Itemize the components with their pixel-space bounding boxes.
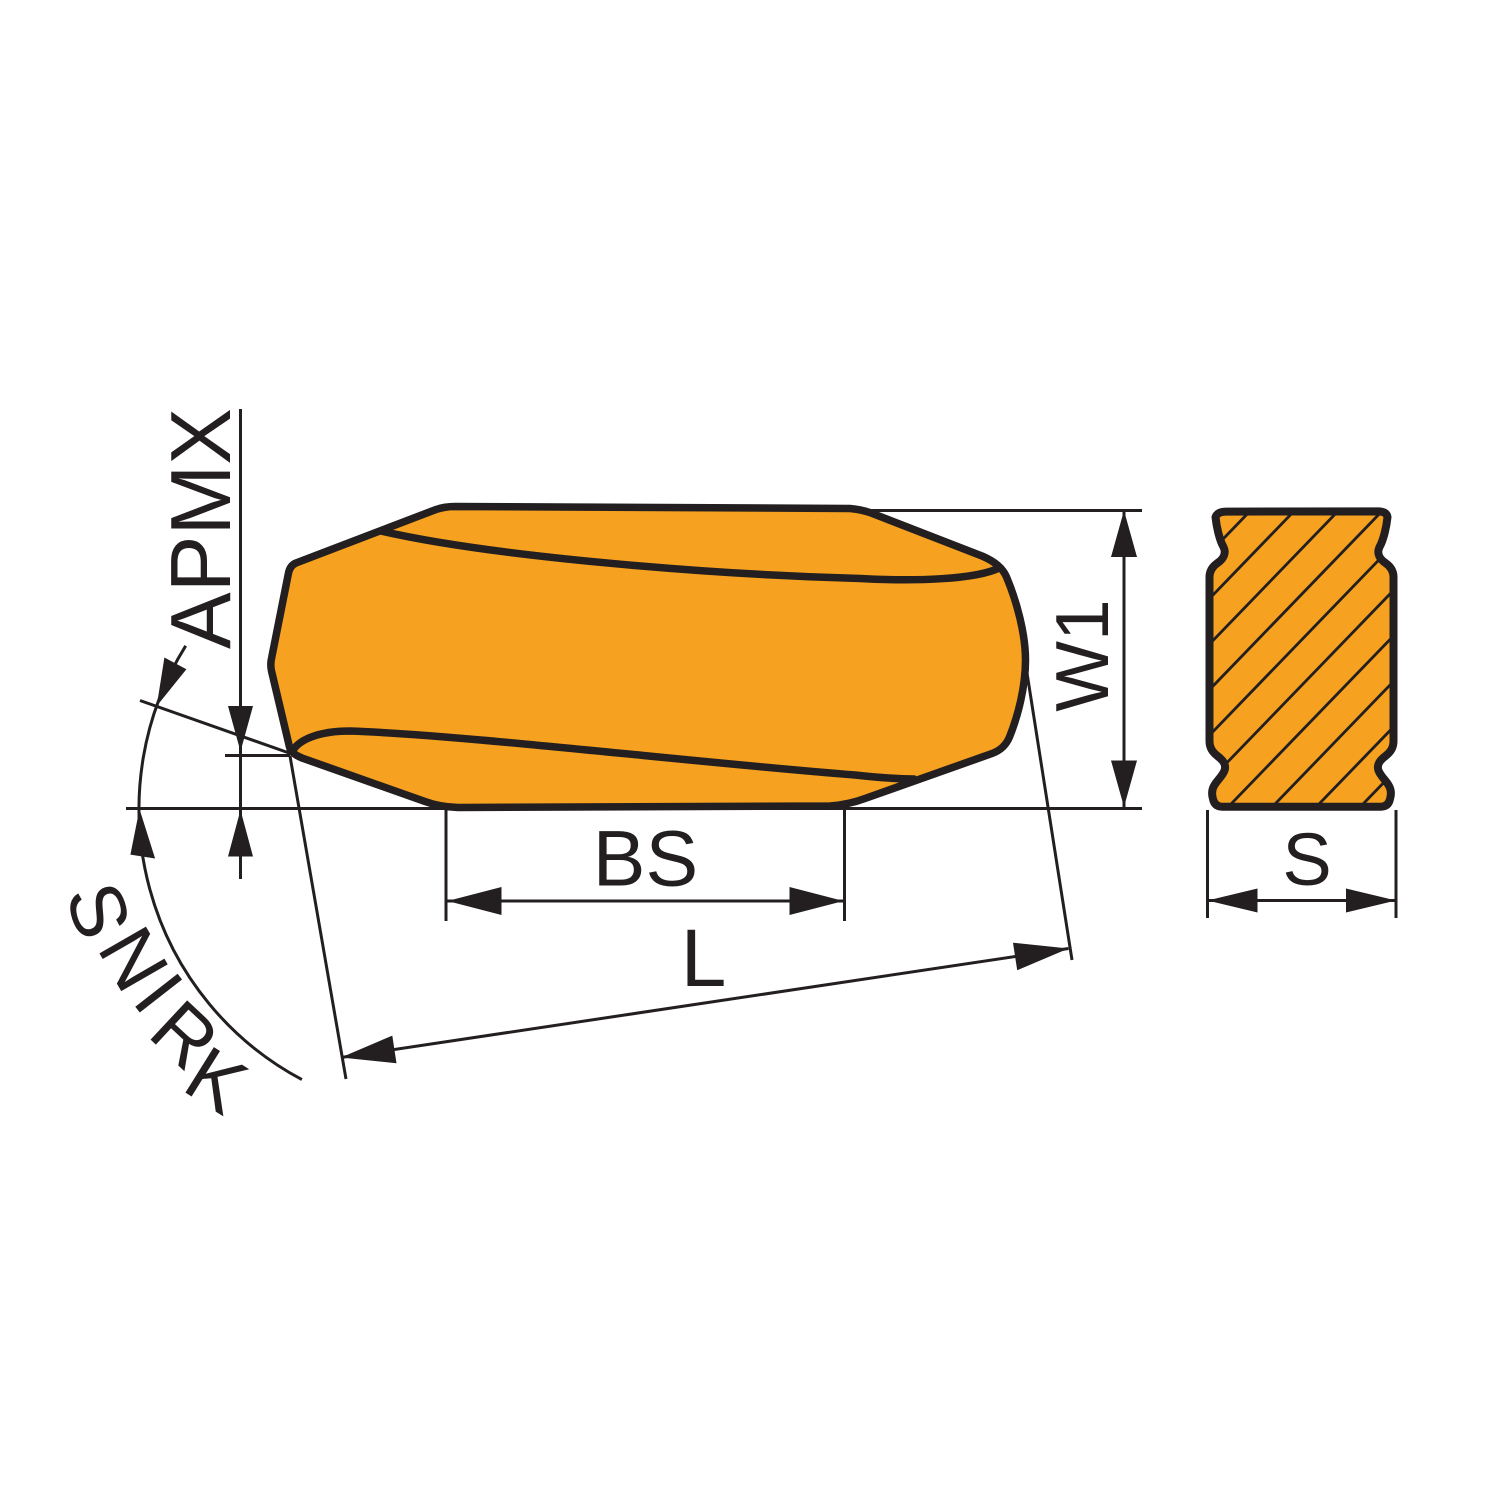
- svg-text:APMX: APMX: [154, 408, 249, 649]
- svg-text:S: S: [1282, 818, 1331, 901]
- svg-text:L: L: [681, 913, 727, 1004]
- svg-text:BS: BS: [593, 814, 698, 903]
- svg-text:W1: W1: [1040, 599, 1124, 712]
